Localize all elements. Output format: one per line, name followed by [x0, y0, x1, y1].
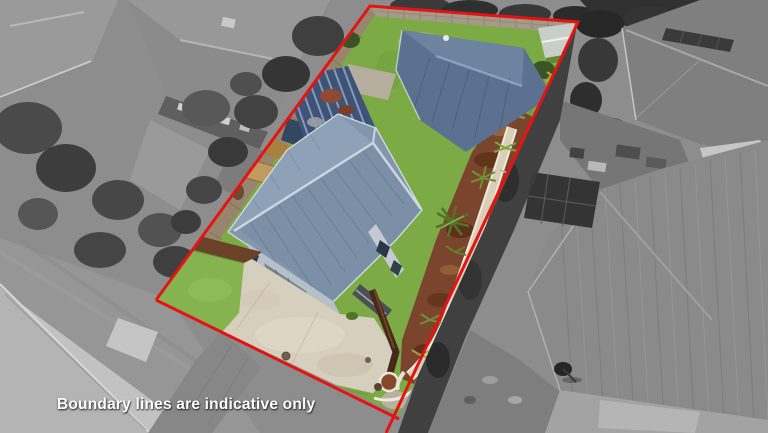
boundary-disclaimer-caption: Boundary lines are indicative only — [57, 396, 315, 414]
neighbor-garage-solar-roof — [524, 172, 600, 228]
right-neighbor-main-roof — [524, 140, 768, 420]
aerial-property-photo: Boundary lines are indicative only — [0, 0, 768, 433]
aerial-photo-canvas — [0, 0, 768, 433]
